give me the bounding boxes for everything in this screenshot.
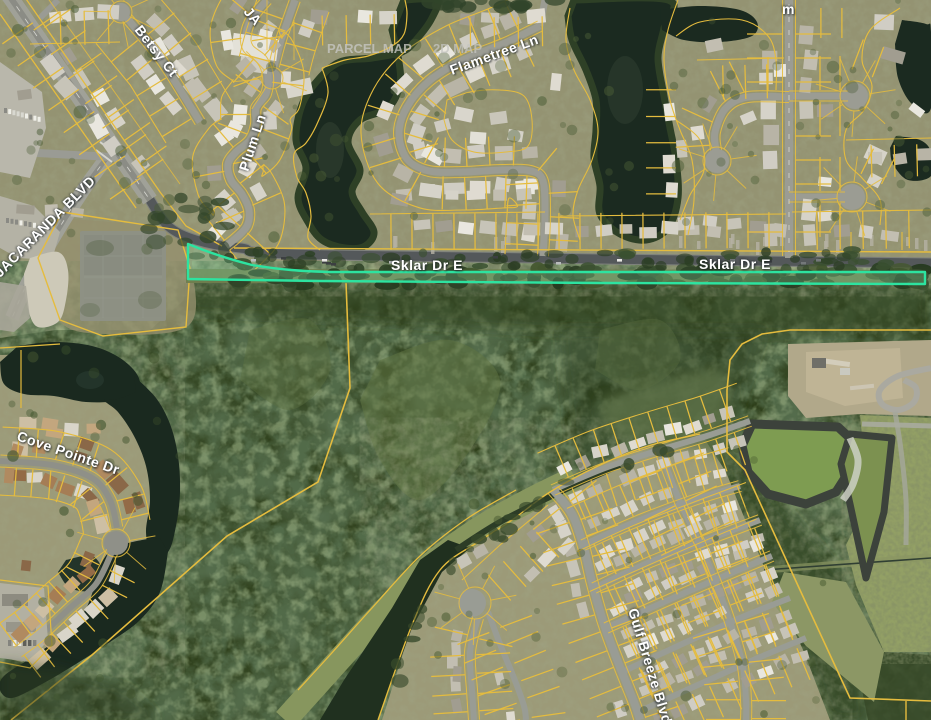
- svg-text:Sklar Dr E: Sklar Dr E: [391, 257, 463, 273]
- svg-text:PARCEL MAP: PARCEL MAP: [327, 41, 412, 56]
- svg-text:Sklar Dr E: Sklar Dr E: [699, 256, 771, 272]
- svg-text:m: m: [782, 1, 795, 17]
